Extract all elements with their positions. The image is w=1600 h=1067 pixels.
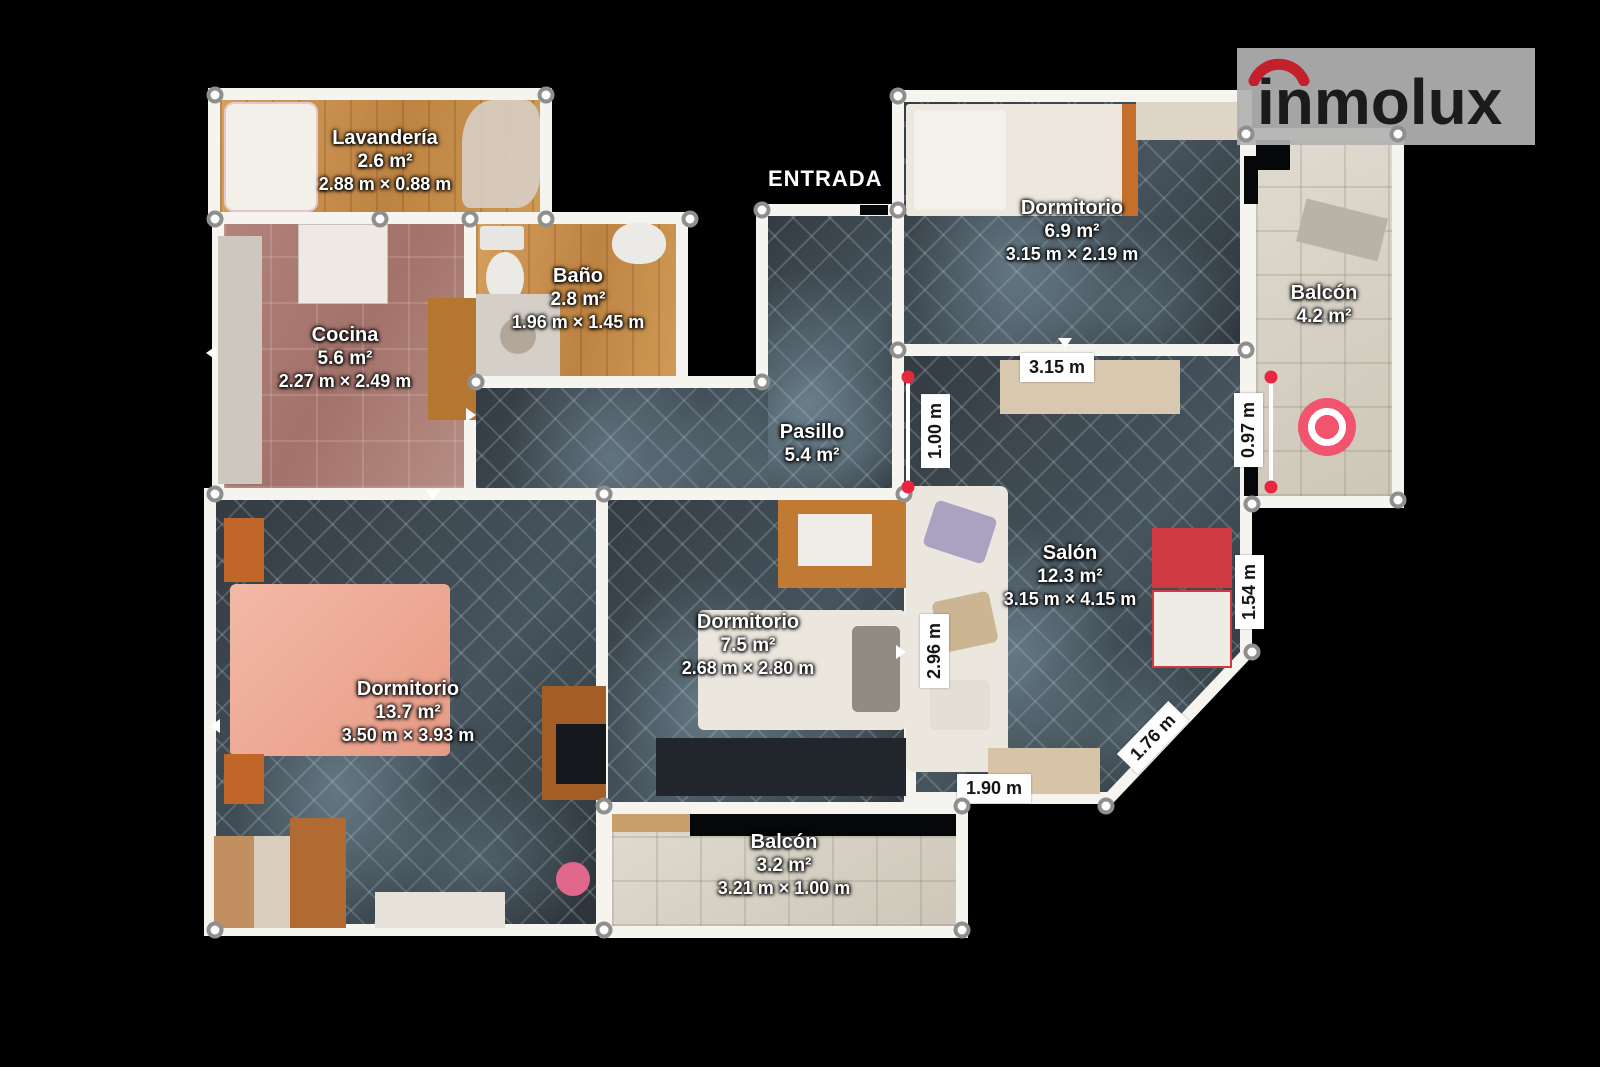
vertex-handle-icon	[890, 202, 907, 219]
room-label-salon: Salón 12.3 m² 3.15 m × 4.15 m	[960, 541, 1180, 611]
vertex-handle-icon	[754, 374, 771, 391]
bench	[375, 892, 505, 928]
room-area: 2.8 m²	[468, 288, 688, 311]
door-arrow-icon	[1058, 338, 1072, 348]
measure-pasillo-right: 1.00 m	[921, 394, 950, 468]
pillow-dormitorio-tr	[914, 110, 1006, 210]
pillow-dormitorio-c	[852, 626, 900, 712]
room-label-balcon-right: Balcón 4.2 m²	[1254, 281, 1394, 329]
washing-machine	[298, 224, 388, 304]
room-dims: 2.88 m × 0.88 m	[265, 174, 505, 196]
room-area: 5.6 m²	[245, 347, 445, 370]
room-dims: 3.15 m × 4.15 m	[960, 589, 1180, 611]
door-arrow-icon	[466, 408, 476, 422]
vertex-handle-icon	[890, 342, 907, 359]
dark-rug	[656, 738, 906, 796]
room-name: Cocina	[245, 323, 445, 347]
vertex-handle-icon	[207, 486, 224, 503]
room-area: 12.3 m²	[960, 565, 1180, 588]
vertex-handle-icon	[1390, 126, 1407, 143]
room-area: 4.2 m²	[1254, 305, 1394, 328]
room-area: 13.7 m²	[298, 701, 518, 724]
room-name: Balcón	[674, 830, 894, 854]
door-arrow-icon	[896, 645, 906, 659]
measure-line-right	[1269, 377, 1273, 487]
room-label-lavanderia: Lavandería 2.6 m² 2.88 m × 0.88 m	[265, 126, 505, 196]
measure-salon-bottom: 1.90 m	[957, 774, 1031, 803]
vertex-handle-icon	[1244, 644, 1261, 661]
room-label-pasillo: Pasillo 5.4 m²	[732, 420, 892, 468]
vertex-handle-icon	[954, 922, 971, 939]
door-arrow-icon	[426, 490, 440, 500]
nightstand-top	[224, 518, 264, 582]
vertex-handle-icon	[682, 211, 699, 228]
room-area: 3.2 m²	[674, 854, 894, 877]
shelf-dormitorio-tr	[1136, 102, 1240, 140]
room-name: Pasillo	[732, 420, 892, 444]
vertex-handle-icon	[1098, 798, 1115, 815]
camera-position-marker-icon	[1298, 398, 1356, 456]
toilet-tank	[480, 226, 524, 250]
wardrobe-wood-panel	[214, 836, 254, 928]
room-dims: 3.50 m × 3.93 m	[298, 725, 518, 747]
room-area: 5.4 m²	[732, 444, 892, 467]
vertex-handle-icon	[890, 88, 907, 105]
room-dims: 2.27 m × 2.49 m	[245, 371, 445, 393]
pasillo-top-wall	[464, 376, 768, 388]
room-name: Salón	[960, 541, 1180, 565]
logo-roof-arc-icon	[1247, 54, 1311, 86]
room-name: Baño	[468, 264, 688, 288]
room-label-cocina: Cocina 5.6 m² 2.27 m × 2.49 m	[245, 323, 445, 393]
room-label-dormitorio-bl: Dormitorio 13.7 m² 3.50 m × 3.93 m	[298, 677, 518, 747]
room-name: Dormitorio	[638, 610, 858, 634]
vertex-handle-icon	[207, 87, 224, 104]
room-area: 2.6 m²	[265, 150, 505, 173]
entrance-left-wall	[756, 204, 768, 400]
nightstand-bottom	[224, 754, 264, 804]
vertex-handle-icon	[1238, 126, 1255, 143]
plan-canvas: Lavandería 2.6 m² 2.88 m × 0.88 m Cocina…	[0, 0, 1600, 1067]
measure-endpoint-dot	[1265, 371, 1278, 384]
room-label-dormitorio-c: Dormitorio 7.5 m² 2.68 m × 2.80 m	[638, 610, 858, 680]
room-label-bano: Baño 2.8 m² 1.96 m × 1.45 m	[468, 264, 688, 334]
bathroom-sink	[612, 222, 666, 264]
vertex-handle-icon	[1390, 492, 1407, 509]
measure-salon-left: 2.96 m	[920, 614, 949, 688]
vertex-handle-icon	[596, 922, 613, 939]
entrance-door-gap	[860, 205, 888, 215]
vertex-handle-icon	[596, 798, 613, 815]
measure-salon-top: 3.15 m	[1020, 353, 1094, 382]
measure-endpoint-dot	[1265, 481, 1278, 494]
vertex-handle-icon	[538, 87, 555, 104]
room-area: 6.9 m²	[962, 220, 1182, 243]
measure-salon-right: 1.54 m	[1235, 555, 1264, 629]
room-area: 7.5 m²	[638, 634, 858, 657]
door-arrow-icon	[210, 719, 220, 733]
room-label-balcon-bottom: Balcón 3.2 m² 3.21 m × 1.00 m	[674, 830, 894, 900]
measure-line-left	[906, 377, 910, 487]
room-label-dormitorio-tr: Dormitorio 6.9 m² 3.15 m × 2.19 m	[962, 196, 1182, 266]
entrance-label: ENTRADA	[768, 166, 883, 192]
room-dims: 3.15 m × 2.19 m	[962, 244, 1182, 266]
vertex-handle-icon	[596, 486, 613, 503]
room-name: Dormitorio	[962, 196, 1182, 220]
tall-cabinet	[290, 818, 346, 928]
vertex-handle-icon	[754, 202, 771, 219]
room-name: Dormitorio	[298, 677, 518, 701]
vertex-handle-icon	[954, 798, 971, 815]
vertex-handle-icon	[1244, 496, 1261, 513]
room-name: Lavandería	[265, 126, 505, 150]
measure-balcony-wall: 0.97 m	[1234, 393, 1263, 467]
room-name: Balcón	[1254, 281, 1394, 305]
vertex-handle-icon	[207, 922, 224, 939]
room-dims: 1.96 m × 1.45 m	[468, 312, 688, 334]
measure-endpoint-dot	[902, 481, 915, 494]
laptop	[798, 514, 872, 566]
room-dims: 2.68 m × 2.80 m	[638, 658, 858, 680]
pink-stool	[556, 862, 590, 896]
vertex-handle-icon	[462, 211, 479, 228]
inmolux-logo: inmolux	[1237, 48, 1535, 145]
vertex-handle-icon	[207, 211, 224, 228]
vertex-handle-icon	[538, 211, 555, 228]
door-arrow-icon	[206, 346, 216, 360]
room-dims: 3.21 m × 1.00 m	[674, 878, 894, 900]
vertex-handle-icon	[468, 374, 485, 391]
vertex-handle-icon	[372, 211, 389, 228]
measure-endpoint-dot	[902, 371, 915, 384]
desk-chair-dark	[556, 724, 606, 784]
vertex-handle-icon	[1238, 342, 1255, 359]
